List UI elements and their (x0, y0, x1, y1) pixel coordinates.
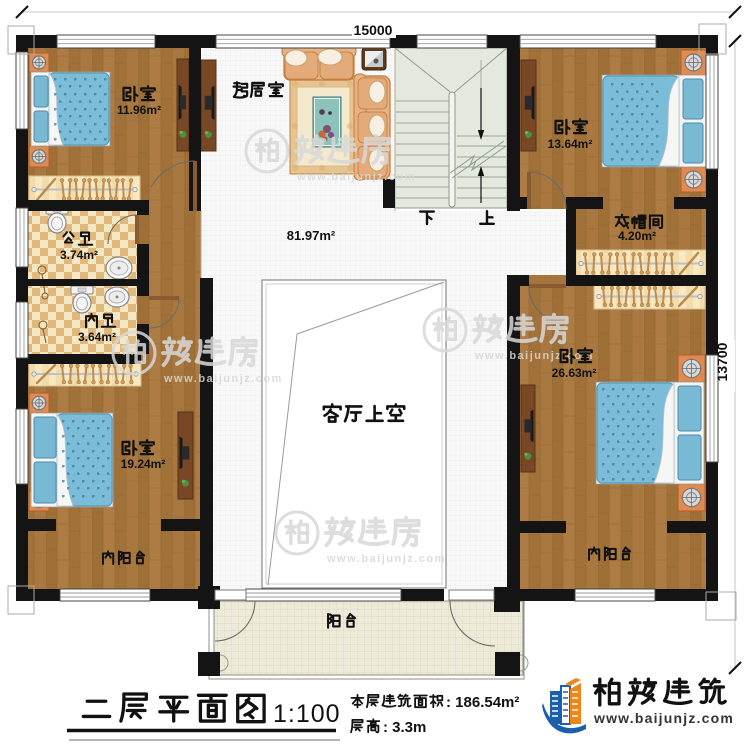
svg-text:26.63m²: 26.63m² (552, 366, 597, 380)
svg-text:3.64m²: 3.64m² (78, 330, 116, 344)
svg-text:www.baijunjz.com: www.baijunjz.com (163, 373, 283, 385)
svg-text:3.74m²: 3.74m² (60, 248, 98, 262)
svg-text:19.24m²: 19.24m² (121, 457, 166, 471)
svg-text:81.97m²: 81.97m² (287, 228, 336, 243)
svg-text:: 186.54m²: : 186.54m² (446, 694, 519, 711)
svg-text:4.20m²: 4.20m² (618, 229, 656, 243)
svg-text:1:100: 1:100 (273, 700, 341, 728)
svg-text:www.baijunjz.com: www.baijunjz.com (474, 350, 594, 362)
svg-text:13700: 13700 (714, 342, 730, 381)
svg-text:www.baijunjz.com: www.baijunjz.com (593, 710, 734, 726)
svg-text:11.96m²: 11.96m² (117, 103, 161, 117)
svg-text:www.baijunjz.com: www.baijunjz.com (326, 553, 446, 565)
svg-text:: 3.3m: : 3.3m (383, 719, 426, 736)
svg-text:www.baijunjz.com: www.baijunjz.com (296, 171, 416, 183)
svg-text:15000: 15000 (354, 22, 393, 38)
svg-text:13.64m²: 13.64m² (548, 137, 593, 151)
